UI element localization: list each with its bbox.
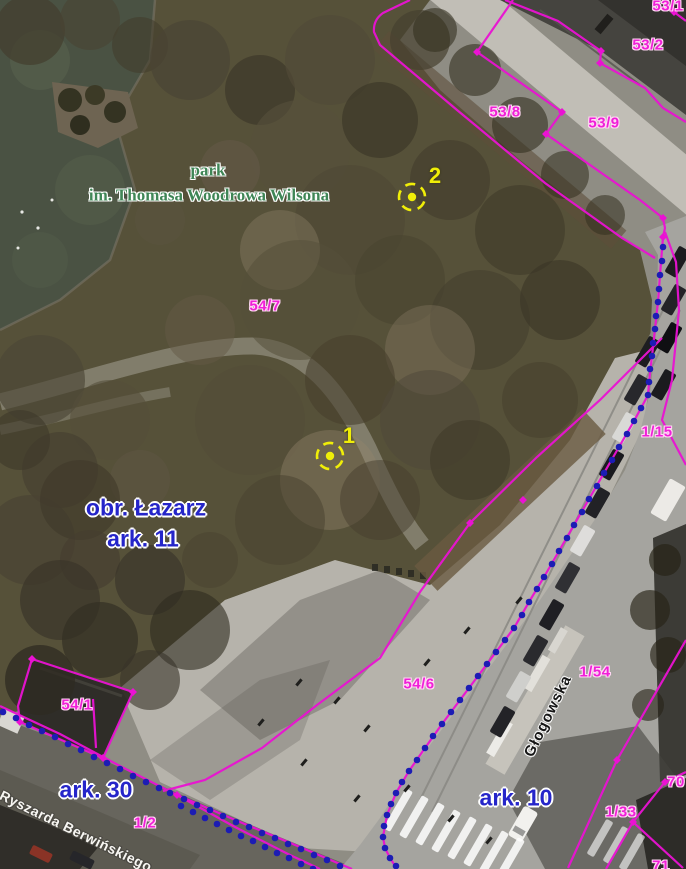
point-2-dot — [408, 193, 416, 201]
boundary-53-8 — [477, 0, 562, 134]
boundary-54-6-nw — [163, 338, 662, 791]
boundary-vertices — [16, 8, 678, 826]
boundary-53-2-south — [505, 0, 686, 122]
boundary-53-9-west — [546, 134, 665, 237]
boundary-park-ne — [374, 0, 655, 258]
boundary-bottom-right-2 — [606, 772, 686, 869]
cadastral-lines-layer — [0, 0, 686, 869]
point-markers — [313, 180, 428, 472]
boundary-street-west — [383, 237, 663, 869]
sheet-boundary-dots-street — [380, 244, 667, 869]
map-viewport[interactable]: 53/153/253/853/954/71/1554/61/5454/11/27… — [0, 0, 686, 869]
point-1-dot — [326, 452, 334, 460]
boundary-bottom-right-3 — [633, 822, 683, 868]
boundary-street-east — [662, 232, 686, 465]
